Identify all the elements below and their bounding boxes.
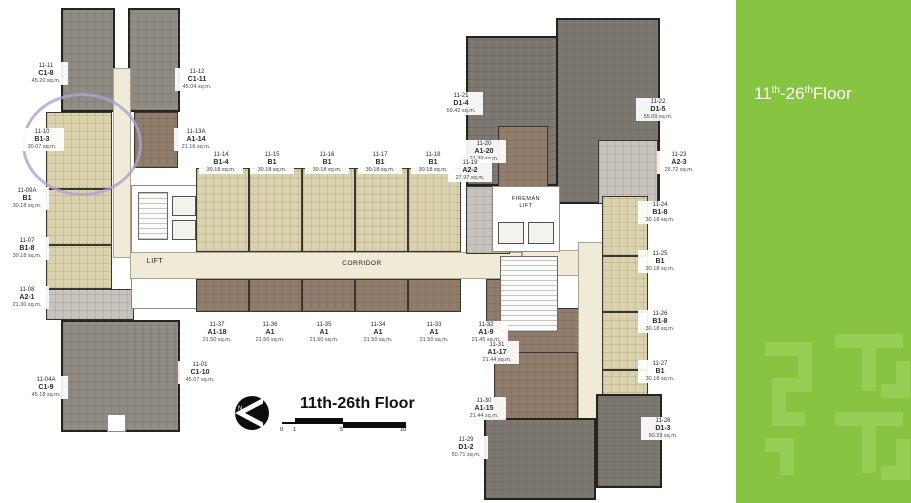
unit-type: B1	[305, 159, 349, 167]
panel-maze-pattern	[735, 327, 911, 503]
unit-label-11-15: 11-15B130.18 sq.m.	[250, 151, 294, 174]
unit-label-11-24: 11-24B1-830.18 sq.m.	[638, 201, 682, 224]
unit-type: C1-8	[24, 70, 68, 78]
unit-area: 21.44 sq.m.	[462, 413, 506, 419]
scale-bar-segment-upper	[295, 418, 343, 423]
unit-area: 21.30 sq.m.	[5, 302, 49, 308]
unit-no: 11-11	[24, 63, 68, 70]
north-letter: N	[238, 406, 242, 412]
unit-label-11-21: 11-21D1-459.42 sq.m.	[439, 92, 483, 115]
fireman-lift-label: FIREMAN LIFT	[498, 196, 554, 209]
unit-area: 45.20 sq.m.	[24, 78, 68, 84]
lift-shaft-fireman-2	[528, 222, 554, 244]
unit-no: 11-01	[178, 362, 222, 369]
unit-block-a1-33[interactable]	[408, 279, 461, 312]
panel-floor-sup1: th	[772, 85, 780, 96]
unit-area: 21.50 sq.m.	[412, 337, 456, 343]
unit-area: 30.18 sq.m.	[5, 203, 49, 209]
unit-area: 45.04 sq.m.	[175, 84, 219, 90]
unit-type: A1-18	[195, 329, 239, 337]
unit-label-11-29: 11-29D1-250.71 sq.m.	[444, 436, 488, 459]
unit-label-11-37: 11-37A1-1821.50 sq.m.	[195, 321, 239, 344]
unit-area: 30.18 sq.m.	[199, 167, 243, 173]
lift-shaft-left-2	[172, 220, 196, 240]
unit-label-11-19: 11-19A2-227.97 sq.m.	[448, 159, 492, 182]
unit-label-11-12: 11-12C1-1145.04 sq.m.	[175, 68, 219, 91]
unit-label-11-31: 11-31A1-1721.44 sq.m.	[475, 341, 519, 364]
unit-no: 11-09A	[5, 188, 49, 195]
unit-no: 11-25	[638, 251, 682, 258]
unit-area: 50.71 sq.m.	[444, 452, 488, 458]
corridor-label: CORRIDOR	[322, 260, 402, 267]
pattern-shape-1	[765, 349, 805, 419]
unit-type: A1-15	[462, 405, 506, 413]
unit-no: 11-22	[636, 99, 680, 106]
unit-block-a1-35[interactable]	[302, 279, 355, 312]
unit-label-11-13A: 11-13AA1-1421.16 sq.m.	[174, 128, 218, 151]
unit-label-11-26: 11-26B1-830.18 sq.m.	[638, 310, 682, 333]
panel-floor-word: Floor	[813, 84, 852, 103]
unit-block-b1-09a[interactable]	[46, 189, 112, 245]
unit-type: A1-17	[475, 349, 519, 357]
stair-right	[500, 256, 558, 332]
unit-type: B1-8	[638, 209, 682, 217]
unit-type: D1-5	[636, 106, 680, 114]
unit-area: 30.07 sq.m.	[20, 144, 64, 150]
north-arrow-icon: N	[233, 394, 271, 437]
scale-tick-10: 10	[400, 427, 406, 433]
fireman-lift-line2: LIFT	[498, 203, 554, 210]
unit-area: 21.16 sq.m.	[174, 144, 218, 150]
panel-floor-num1: 11	[754, 84, 772, 103]
pattern-shape-3	[835, 341, 903, 391]
pattern-shape-2	[765, 445, 787, 475]
unit-block-a1-18-37[interactable]	[196, 279, 249, 312]
unit-type: B1-8	[5, 245, 49, 253]
unit-block-b1-4[interactable]	[196, 168, 249, 252]
unit-block-a2-1[interactable]	[46, 289, 134, 320]
unit-label-11-10: 11-10B1-330.07 sq.m.	[20, 128, 64, 151]
unit-label-11-30: 11-30A1-1521.44 sq.m.	[462, 397, 506, 420]
tower-d1-3[interactable]	[596, 394, 662, 488]
unit-type: D1-4	[439, 100, 483, 108]
unit-no: 11-20	[462, 141, 506, 148]
unit-type: A1-14	[174, 136, 218, 144]
unit-block-a1-36[interactable]	[249, 279, 302, 312]
tower-d1-2[interactable]	[484, 418, 596, 500]
unit-area: 55.09 sq.m.	[636, 114, 680, 120]
unit-no: 11-16	[305, 152, 349, 159]
scale-bar: 0 1 5 10	[282, 416, 406, 432]
unit-block-a2-3[interactable]	[598, 140, 658, 204]
panel-floor-sup2: th	[805, 85, 813, 96]
stair-left	[138, 192, 168, 240]
unit-type: B1	[5, 195, 49, 203]
unit-type: C1-11	[175, 76, 219, 84]
unit-area: 45.07 sq.m.	[178, 377, 222, 383]
unit-type: A1-9	[464, 329, 508, 337]
unit-area: 21.50 sq.m.	[195, 337, 239, 343]
unit-type: A2-3	[657, 159, 701, 167]
unit-no: 11-15	[250, 152, 294, 159]
unit-block-b1-16[interactable]	[302, 168, 355, 252]
unit-no: 11-27	[638, 361, 682, 368]
unit-no: 11-35	[302, 322, 346, 329]
scale-bar-segment-lower	[343, 423, 406, 428]
unit-type: B1	[638, 258, 682, 266]
unit-label-11-28: 11-28D1-350.29 sq.m.	[641, 417, 685, 440]
unit-type: D1-2	[444, 444, 488, 452]
unit-no: 11-37	[195, 322, 239, 329]
unit-no: 11-29	[444, 437, 488, 444]
unit-no: 11-30	[462, 398, 506, 405]
unit-block-b1-8-07[interactable]	[46, 245, 112, 289]
unit-no: 11-36	[248, 322, 292, 329]
unit-label-11-04A: 11-04AC1-945.18 sq.m.	[24, 376, 68, 399]
unit-type: B1	[358, 159, 402, 167]
floorplan-page: 11-11C1-845.20 sq.m.11-12C1-1145.04 sq.m…	[0, 0, 911, 503]
unit-type: B1-3	[20, 136, 64, 144]
unit-no: 11-14	[199, 152, 243, 159]
unit-label-11-09A: 11-09AB130.18 sq.m.	[5, 187, 49, 210]
unit-type: A1	[412, 329, 456, 337]
unit-type: B1	[250, 159, 294, 167]
fireman-lift-line1: FIREMAN	[498, 196, 554, 203]
notch-bottom-left	[107, 414, 126, 432]
unit-area: 59.42 sq.m.	[439, 108, 483, 114]
unit-no: 11-23	[657, 152, 701, 159]
unit-block-b1-17[interactable]	[355, 168, 408, 252]
unit-block-a1-34[interactable]	[355, 279, 408, 312]
panel-floor-num2: -26	[780, 84, 805, 103]
unit-type: C1-9	[24, 384, 68, 392]
scale-tick-0: 0	[280, 427, 283, 433]
unit-area: 30.18 sq.m.	[358, 167, 402, 173]
pattern-shape-4	[835, 419, 903, 473]
unit-label-11-07: 11-07B1-830.18 sq.m.	[5, 237, 49, 260]
unit-no: 11-21	[439, 93, 483, 100]
unit-label-11-27: 11-27B130.18 sq.m.	[638, 360, 682, 383]
unit-type: A2-2	[448, 167, 492, 175]
unit-area: 21.50 sq.m.	[248, 337, 292, 343]
lift-shaft-left-1	[172, 196, 196, 216]
unit-type: A1	[248, 329, 292, 337]
unit-no: 11-26	[638, 311, 682, 318]
unit-no: 11-17	[358, 152, 402, 159]
unit-no: 11-32	[464, 322, 508, 329]
unit-type: A2-1	[5, 294, 49, 302]
unit-no: 11-10	[20, 129, 64, 136]
unit-no: 11-31	[475, 342, 519, 349]
lift-shaft-fireman-1	[498, 222, 524, 244]
unit-area: 45.18 sq.m.	[24, 392, 68, 398]
unit-area: 21.50 sq.m.	[356, 337, 400, 343]
unit-no: 11-19	[448, 160, 492, 167]
unit-no: 11-07	[5, 238, 49, 245]
floor-info-panel: 11th-26thFloor	[736, 0, 911, 503]
unit-area: 21.50 sq.m.	[302, 337, 346, 343]
unit-label-11-08: 11-08A2-121.30 sq.m.	[5, 286, 49, 309]
unit-area: 21.44 sq.m.	[475, 357, 519, 363]
unit-label-11-36: 11-36A121.50 sq.m.	[248, 321, 292, 344]
unit-area: 27.97 sq.m.	[448, 175, 492, 181]
unit-label-11-25: 11-25B130.18 sq.m.	[638, 250, 682, 273]
unit-no: 11-18	[411, 152, 455, 159]
unit-label-11-11: 11-11C1-845.20 sq.m.	[24, 62, 68, 85]
plan-title: 11th-26th Floor	[300, 395, 415, 413]
unit-area: 50.29 sq.m.	[641, 433, 685, 439]
unit-label-11-34: 11-34A121.50 sq.m.	[356, 321, 400, 344]
lift-label: LIFT	[138, 258, 172, 265]
tower-c1-11[interactable]	[128, 8, 180, 112]
unit-area: 30.18 sq.m.	[305, 167, 349, 173]
unit-no: 11-33	[412, 322, 456, 329]
scale-tick-5: 5	[340, 427, 343, 433]
unit-type: B1-4	[199, 159, 243, 167]
panel-floor-label: 11th-26thFloor	[754, 84, 852, 104]
scale-tick-1: 1	[293, 427, 296, 433]
unit-area: 26.72 sq.m.	[657, 167, 701, 173]
unit-area: 30.18 sq.m.	[638, 217, 682, 223]
unit-type: A1	[302, 329, 346, 337]
unit-no: 11-24	[638, 202, 682, 209]
unit-type: A1	[356, 329, 400, 337]
unit-no: 11-12	[175, 69, 219, 76]
unit-type: D1-3	[641, 425, 685, 433]
unit-type: C1-10	[178, 369, 222, 377]
unit-label-11-35: 11-35A121.50 sq.m.	[302, 321, 346, 344]
unit-area: 30.18 sq.m.	[638, 266, 682, 272]
unit-label-11-23: 11-23A2-326.72 sq.m.	[657, 151, 701, 174]
unit-area: 30.18 sq.m.	[638, 376, 682, 382]
unit-type: A1-20	[462, 148, 506, 156]
unit-no: 11-08	[5, 287, 49, 294]
unit-label-11-17: 11-17B130.18 sq.m.	[358, 151, 402, 174]
unit-area: 30.18 sq.m.	[250, 167, 294, 173]
unit-label-11-22: 11-22D1-555.09 sq.m.	[636, 98, 680, 121]
unit-no: 11-34	[356, 322, 400, 329]
unit-label-11-01: 11-01C1-1045.07 sq.m.	[178, 361, 222, 384]
unit-type: B1-8	[638, 318, 682, 326]
unit-area: 30.18 sq.m.	[5, 253, 49, 259]
unit-block-b1-15[interactable]	[249, 168, 302, 252]
unit-no: 11-28	[641, 418, 685, 425]
unit-type: B1	[638, 368, 682, 376]
unit-label-11-14: 11-14B1-430.18 sq.m.	[199, 151, 243, 174]
unit-area: 30.18 sq.m.	[638, 326, 682, 332]
unit-no: 11-04A	[24, 377, 68, 384]
unit-label-11-16: 11-16B130.18 sq.m.	[305, 151, 349, 174]
unit-no: 11-13A	[174, 129, 218, 136]
unit-label-11-33: 11-33A121.50 sq.m.	[412, 321, 456, 344]
